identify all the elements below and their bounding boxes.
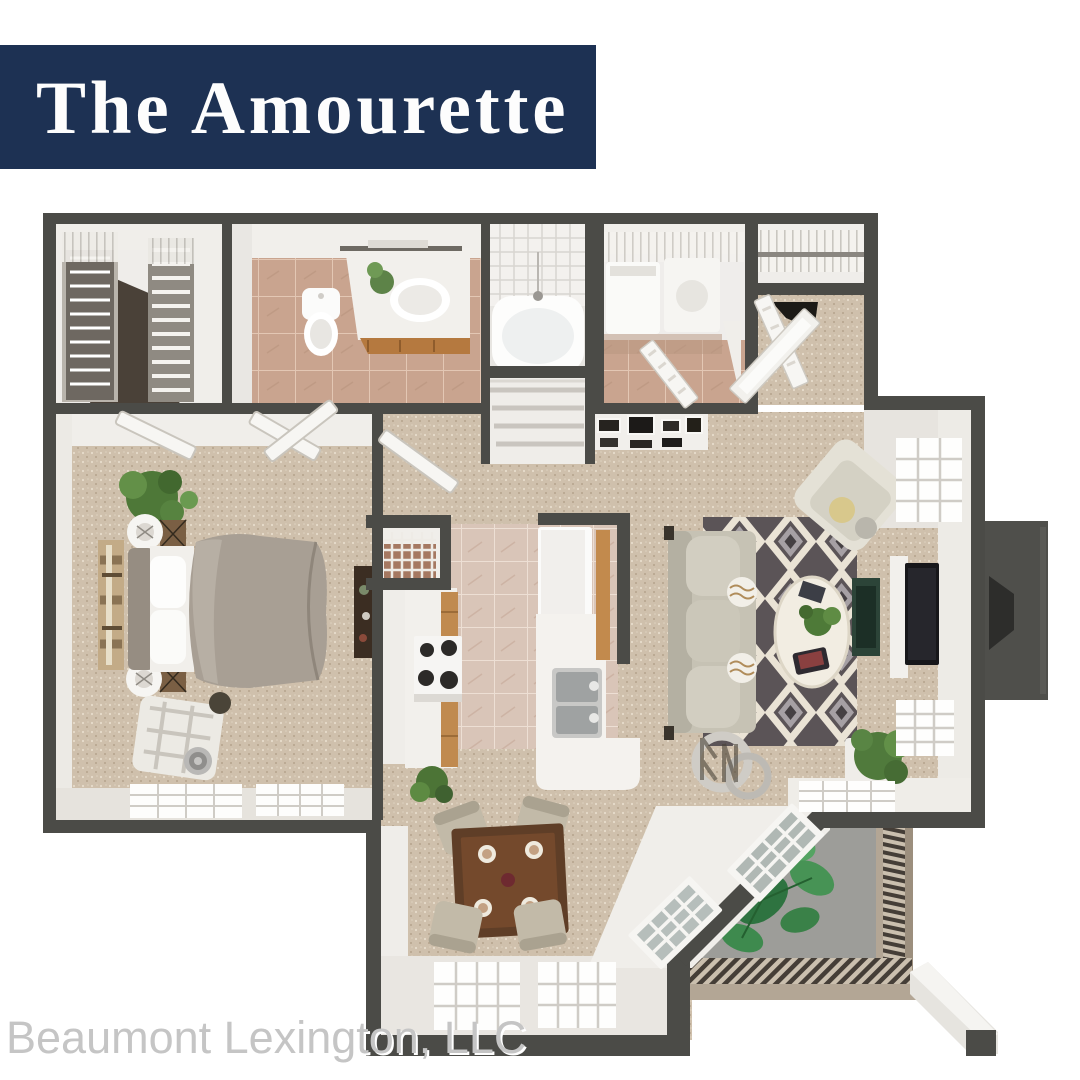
svg-text:Beaumont Lexington, LLC: Beaumont Lexington, LLC	[6, 1012, 526, 1063]
svg-text:The Amourette: The Amourette	[36, 67, 569, 150]
